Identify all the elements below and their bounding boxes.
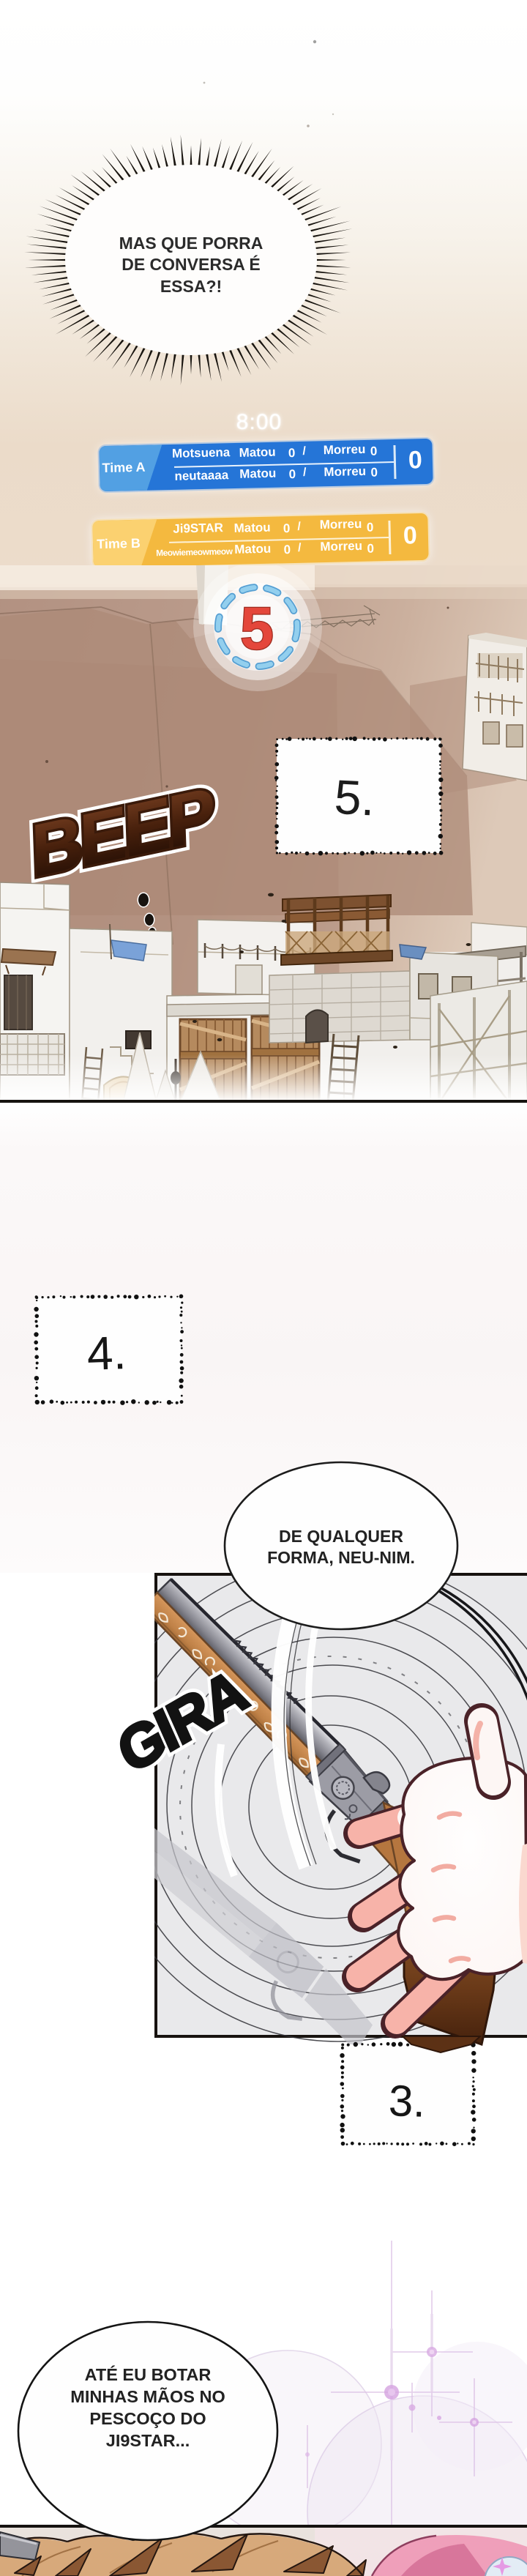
svg-text:5.: 5. xyxy=(333,770,376,826)
svg-text:3.: 3. xyxy=(388,2076,426,2126)
svg-text:5: 5 xyxy=(240,595,274,662)
svg-text:GIRA: GIRA xyxy=(108,1656,255,1786)
svg-text:4.: 4. xyxy=(86,1326,127,1380)
